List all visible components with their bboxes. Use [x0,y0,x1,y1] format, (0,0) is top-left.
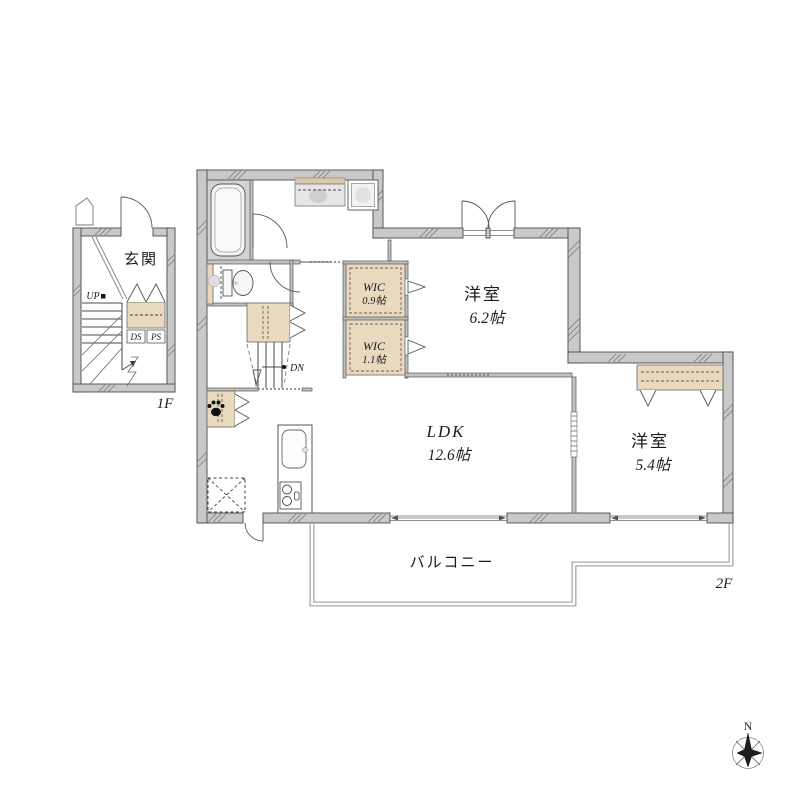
balcony: バルコニー [312,524,731,604]
wic1-area: 0.9帖 [362,295,387,307]
bedroom1-label: 洋室 [464,285,502,304]
duct-spaces: DS PS [127,330,165,343]
sliding-door [571,412,577,457]
kitchen-counter [278,425,312,513]
floor-plan-1f: UP DS PS 玄関 1F [73,197,175,412]
pet-closet [207,391,249,427]
entrance-step-line [92,237,127,299]
bedroom2-label: 洋室 [631,432,669,451]
bathtub [211,184,245,256]
ds-label: DS [130,332,142,342]
ps-label: PS [150,332,161,342]
bedroom2-closet [637,365,723,406]
wic2-label: WIC [363,339,386,353]
floor-plan-drawing: WIC 0.9帖 WIC 1.1帖 [0,0,800,800]
ldk-label: LDK [425,422,465,441]
window-bedroom1-top [462,201,515,238]
landing-closet [247,303,305,342]
floor-label-1f: 1F [157,396,175,412]
washing-machine [348,180,378,210]
entrance-label: 玄関 [124,251,158,268]
kitchen-sink [282,430,306,468]
window-bedroom2-balcony [610,516,707,521]
balcony-label: バルコニー [410,555,495,571]
entrance-door [121,197,152,228]
toilet [207,264,253,304]
stairs-down-label: DN [289,363,305,374]
toilet-door [270,262,330,292]
ldk-area: 12.6帖 [428,447,473,464]
floor-label-2f: 2F [716,576,734,592]
wic2-area: 1.1帖 [362,354,387,366]
refrigerator-space [208,478,245,512]
floor-plan-2f: WIC 0.9帖 WIC 1.1帖 [197,170,733,604]
compass-rose [737,733,762,767]
staircase-down: DN [247,342,305,388]
bedroom1-area: 6.2帖 [470,310,507,327]
porch-canopy [76,198,93,225]
wic1-label: WIC [363,280,386,294]
floor-plan-page: WIC 0.9帖 WIC 1.1帖 [0,0,800,800]
compass: N [733,721,764,769]
bedroom2-area: 5.4帖 [636,457,673,474]
entrance-closet [127,284,165,328]
wic2-room: WIC 1.1帖 [346,320,425,375]
bathroom-door [253,214,287,248]
compass-north-label: N [744,721,753,733]
window-ldk-balcony [390,516,507,521]
vanity-counter [295,178,345,206]
stove [280,482,301,509]
wic1-room: WIC 0.9帖 [346,264,425,317]
stairs-up-label: UP [86,291,99,302]
ldk-exterior-door [245,523,263,541]
